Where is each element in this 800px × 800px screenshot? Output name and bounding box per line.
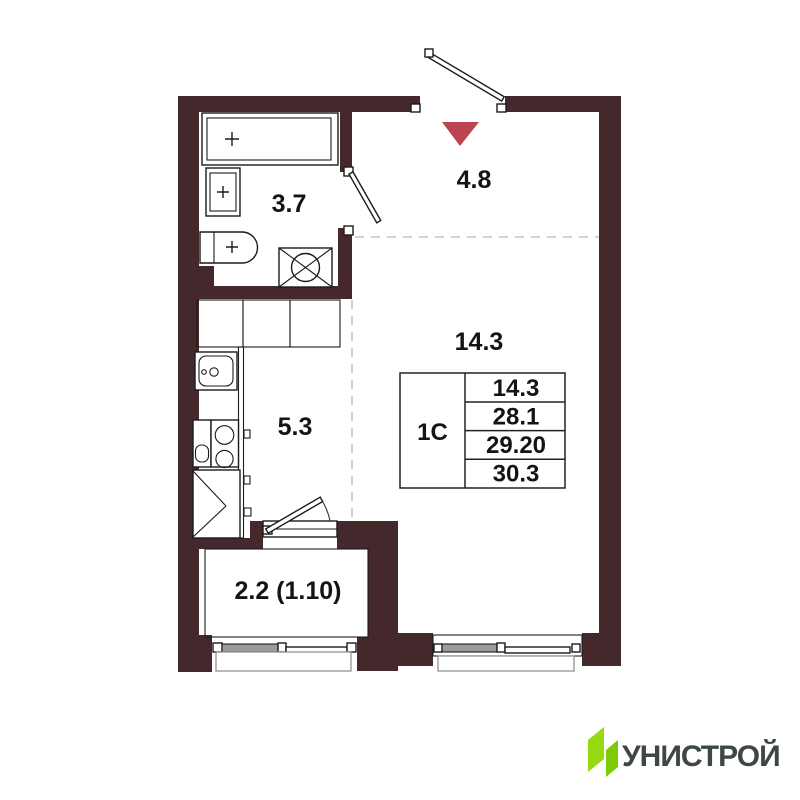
- living-window-sill: [438, 656, 574, 671]
- entrance-leaf-cap: [425, 49, 433, 57]
- balcony-area-label: 2.2 (1.10): [234, 577, 341, 605]
- wall-bath-bottom: [198, 286, 352, 299]
- logo-green-bar-right-icon: [606, 740, 618, 777]
- fridge-niche: [193, 470, 240, 538]
- living-window-cap-right: [572, 644, 580, 652]
- oven-panel: [193, 420, 211, 467]
- floor-plan-page: 1С 14.3 28.1 29.20 30.3 3.7 4.8 14.3 5.3…: [0, 0, 800, 800]
- bathtub: [202, 113, 338, 165]
- wall-right: [599, 96, 621, 666]
- stove-knob-1: [244, 430, 250, 438]
- floor-plan: 1С 14.3 28.1 29.20 30.3 3.7 4.8 14.3 5.3…: [0, 0, 800, 800]
- logo-green-bar-left-icon: [588, 727, 604, 772]
- info-value-1: 14.3: [493, 375, 540, 402]
- developer-logo: УНИСТРОЙ: [588, 727, 780, 777]
- kitchen-cabinet-1: [243, 300, 290, 347]
- apartment-type-label: 1С: [417, 419, 448, 446]
- hallway-area-label: 4.8: [457, 166, 492, 194]
- kitchen-cabinet-2: [290, 300, 340, 347]
- info-value-3: 29.20: [486, 432, 546, 459]
- wall-top-left: [178, 96, 420, 112]
- living-area-label: 14.3: [455, 328, 504, 356]
- stove-knob-2: [244, 476, 250, 484]
- wall-balcony-right: [368, 521, 398, 671]
- kitchen-corner-counter: [197, 300, 243, 347]
- living-window-sash-right: [505, 647, 570, 653]
- wall-bath-divider-upper: [340, 96, 352, 172]
- balcony-window-sash-left: [222, 644, 278, 652]
- stove: [211, 420, 239, 467]
- entrance-door-leaf: [428, 53, 505, 101]
- wall-balcony-right-bottom: [357, 637, 368, 671]
- balcony-window-cap-right: [347, 643, 356, 652]
- entrance: [411, 49, 506, 146]
- living-window: [433, 633, 582, 671]
- info-value-4: 30.3: [493, 461, 540, 488]
- balcony-window-cap-left: [213, 643, 222, 652]
- kitchen-area-label: 5.3: [278, 413, 313, 441]
- entrance-hinge-left: [411, 104, 420, 112]
- logo-wordmark: УНИСТРОЙ: [622, 739, 780, 773]
- wall-balcony-door-left: [250, 521, 263, 549]
- wall-kitchen-bottom: [198, 538, 250, 549]
- living-window-mullion: [497, 643, 505, 652]
- entrance-marker-icon: [442, 122, 479, 146]
- bath-door-hinge-bottom: [344, 226, 353, 235]
- living-window-cap-left: [434, 644, 442, 652]
- entrance-hinge-right: [497, 104, 506, 112]
- balcony-window-mullion: [278, 643, 286, 652]
- living-window-sash-left: [442, 644, 497, 652]
- counter-end-cap: [244, 508, 251, 516]
- balcony-window-sill: [216, 652, 351, 671]
- info-value-2: 28.1: [493, 404, 540, 431]
- wall-balcony-left-bottom: [199, 635, 212, 672]
- apartment-info-table: 1С 14.3 28.1 29.20 30.3: [400, 373, 565, 488]
- bathroom-area-label: 3.7: [272, 190, 307, 218]
- wall-bath-step: [198, 266, 214, 286]
- bath-door-leaf: [349, 172, 381, 223]
